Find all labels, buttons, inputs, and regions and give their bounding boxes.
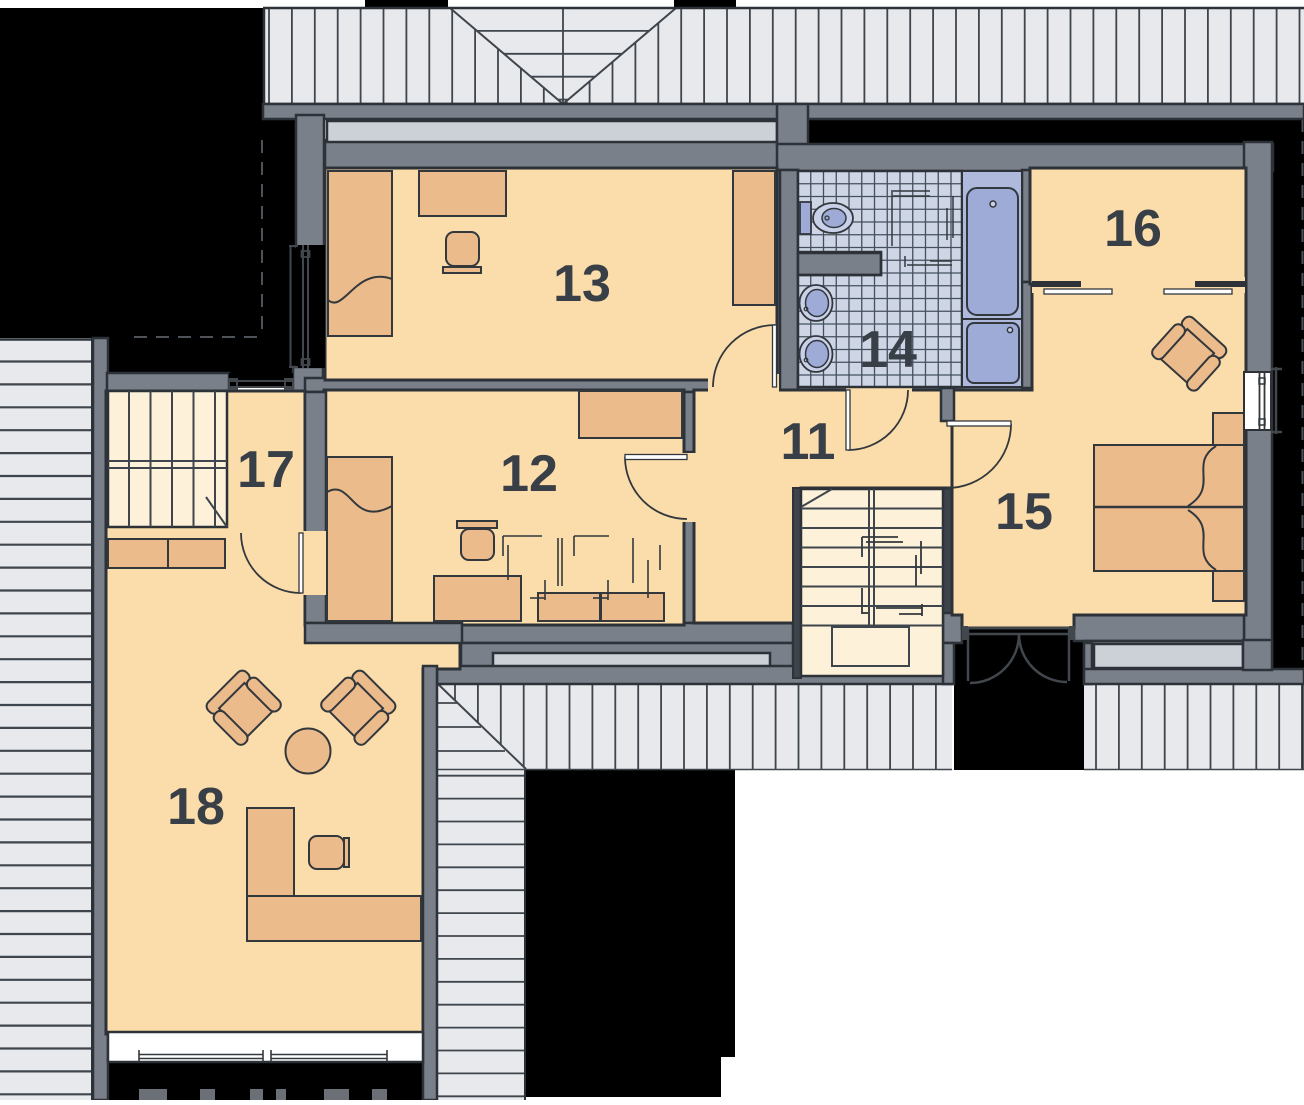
svg-text:12: 12: [500, 445, 558, 503]
svg-text:15: 15: [995, 483, 1053, 541]
svg-text:14: 14: [859, 321, 917, 379]
svg-text:17: 17: [237, 441, 295, 499]
svg-text:18: 18: [167, 778, 225, 836]
svg-text:16: 16: [1104, 200, 1162, 258]
svg-text:11: 11: [781, 413, 836, 471]
svg-text:13: 13: [553, 255, 611, 313]
